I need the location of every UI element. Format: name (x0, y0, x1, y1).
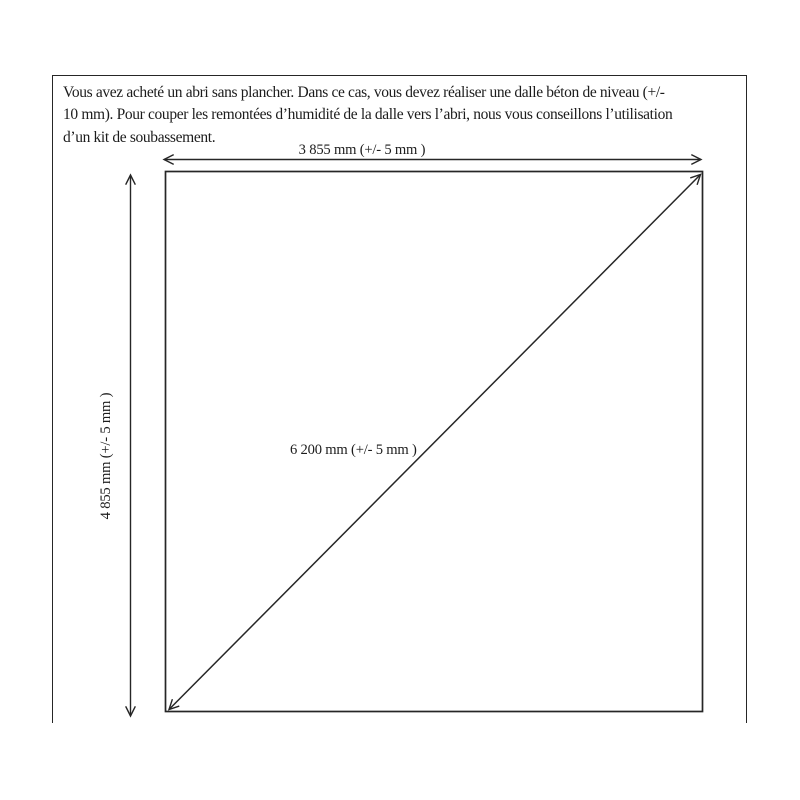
slab-diagram: 6 200 mm (+/- 5 mm ) 3 855 mm (+/- 5 mm … (0, 0, 800, 800)
manual-page: { "page": { "background": "#ffffff", "in… (0, 0, 800, 800)
width-dim-label: 3 855 mm (+/- 5 mm ) (299, 142, 426, 158)
slab-rect (166, 172, 703, 712)
diagonal-dim-arrow (169, 175, 701, 710)
diagonal-dim-label: 6 200 mm (+/- 5 mm ) (290, 442, 417, 458)
height-dim-label: 4 855 mm (+/- 5 mm ) (98, 392, 114, 519)
